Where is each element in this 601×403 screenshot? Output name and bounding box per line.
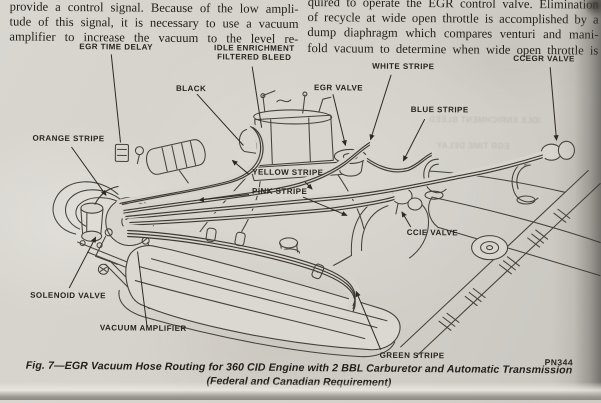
- label-yellow-stripe: YELLOW STRIPE: [252, 168, 323, 178]
- valve-cover-right: [428, 171, 601, 276]
- label-ccie-valve: CCIE VALVE: [407, 228, 458, 237]
- egr-time-delay-part: [115, 144, 143, 163]
- label-egr-time-delay: EGR TIME DELAY: [79, 42, 153, 52]
- label-blue-stripe: BLUE STRIPE: [411, 105, 469, 115]
- label-green-stripe: GREEN STRIPE: [380, 351, 445, 361]
- label-ccegr-valve: CCEGR VALVE: [513, 54, 575, 64]
- label-orange-stripe: ORANGE STRIPE: [32, 134, 104, 144]
- label-egr-valve: EGR VALVE: [314, 83, 363, 92]
- label-vacuum-amplifier: VACUUM AMPLIFIER: [100, 323, 187, 333]
- label-solenoid-valve: SOLENOID VALVE: [30, 291, 106, 301]
- label-black: BLACK: [176, 84, 206, 93]
- engine-diagram-art: [0, 0, 601, 403]
- label-pink-stripe: PINK STRIPE: [252, 187, 307, 196]
- drive-belt: [401, 169, 601, 358]
- bolt-detail: [100, 267, 106, 271]
- scanned-manual-page: { "colors": { "paper": "#d5d2cb", "ink":…: [0, 0, 601, 400]
- label-idle-enrichment-filtered-bleed: IDLE ENRICHMENT FILTERED BLEED: [209, 43, 299, 62]
- label-white-stripe: WHITE STRIPE: [372, 62, 434, 72]
- fuel-filter-part: [144, 138, 210, 191]
- page-content: provide a control signal. Because of the…: [0, 0, 601, 403]
